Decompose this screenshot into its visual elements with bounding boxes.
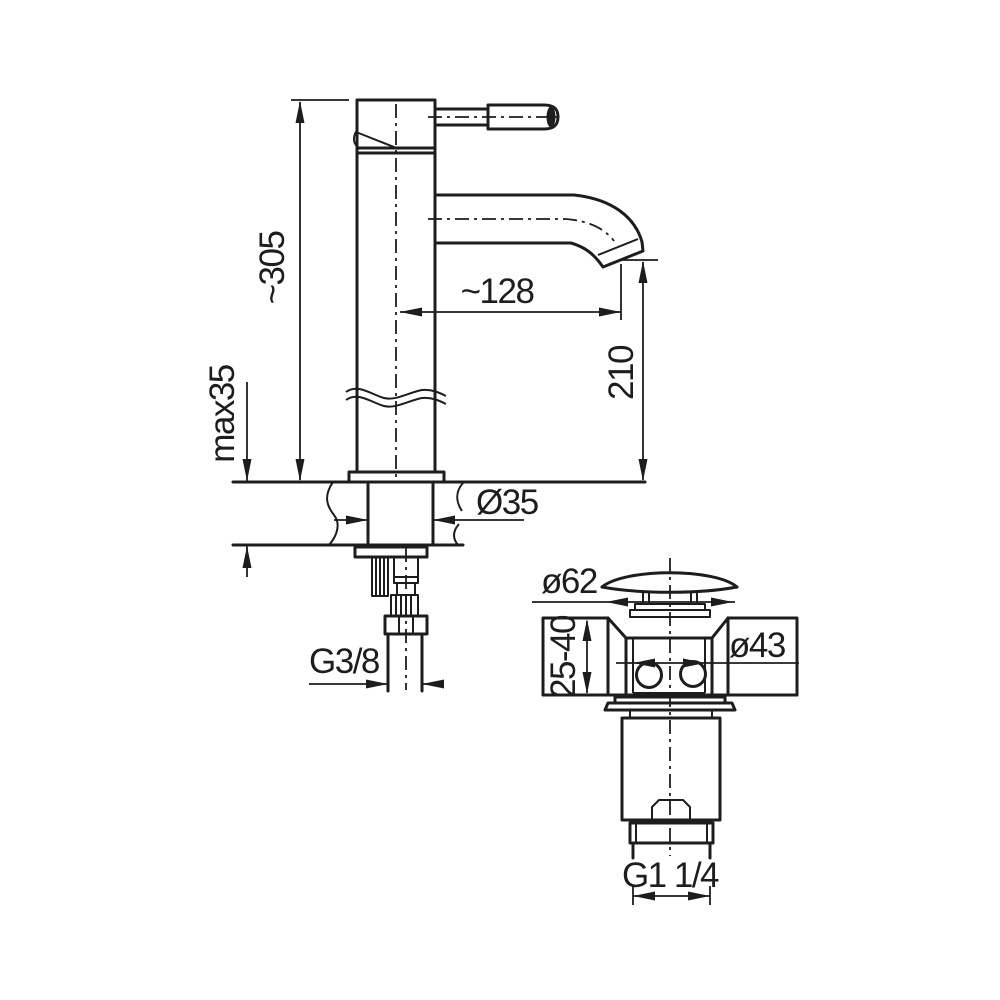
connector-ribs (396, 595, 411, 616)
overflow-slot (652, 800, 690, 820)
dim-d35-arrow-left (346, 516, 368, 525)
faucet-dimension-drawing: ~305 max35 ~128 210 Ø35 G3/8 ø62 (0, 0, 1000, 1000)
dim-210-arrow-bottom (639, 459, 648, 481)
dim-d62-arrow-left (606, 598, 628, 607)
dim-d35-label: Ø35 (476, 483, 538, 522)
dim-g38-arrow-right (422, 680, 444, 689)
dimensions: ~305 max35 ~128 210 Ø35 G3/8 ø62 (203, 100, 799, 905)
dim-2540-arrow-top (583, 619, 592, 641)
waste-tube (622, 718, 720, 820)
waste-funnel (608, 618, 728, 638)
dim-305-arrow-top (296, 101, 305, 123)
dim-2540-arrow-bottom (583, 672, 592, 694)
spout-aerator-line (598, 239, 638, 255)
dim-210-label: 210 (602, 345, 641, 400)
dim-128-arrow-left (400, 308, 422, 317)
deck-break-right (454, 483, 463, 545)
dim-305-label: ~305 (253, 232, 292, 305)
dim-d43-arrow-left (633, 659, 655, 668)
lever-tilt-line (356, 132, 399, 149)
deck-break-left (327, 482, 338, 545)
spout-centerline (428, 219, 614, 241)
dim-305-line (291, 100, 349, 480)
mounting-deck-section (233, 482, 645, 545)
dim-2540-label: 25-40 (544, 615, 583, 698)
dim-max35-arrow-top (243, 459, 252, 481)
dim-g38-label: G3/8 (309, 642, 379, 681)
collar-facet-lines (636, 823, 707, 843)
technical-drawing-page: ~305 max35 ~128 210 Ø35 G3/8 ø62 (0, 0, 1000, 1000)
supply-pipe (388, 634, 422, 691)
dim-d62-arrow-right (711, 598, 733, 607)
handle-end-cap (547, 107, 556, 128)
deck-hole-walls (368, 482, 433, 544)
dim-max35-label: max35 (203, 365, 242, 463)
dim-128-arrow-right (599, 308, 621, 317)
waste-collar-nut (630, 823, 713, 843)
dim-d35-arrow-right (433, 516, 455, 525)
dim-max35-arrow-bottom (243, 546, 252, 568)
dim-128-label: ~128 (461, 272, 534, 311)
dim-d43-label: ø43 (729, 626, 785, 665)
dim-305-arrow-bottom (296, 459, 305, 481)
dim-d62-label: ø62 (541, 562, 597, 601)
dim-g114-label: G1 1/4 (622, 856, 719, 895)
mounting-plate (355, 547, 427, 557)
pop-up-waste-view (543, 558, 797, 858)
spout (435, 195, 643, 267)
dim-210-arrow-top (639, 261, 648, 283)
stud-thread-lines (376, 557, 384, 596)
